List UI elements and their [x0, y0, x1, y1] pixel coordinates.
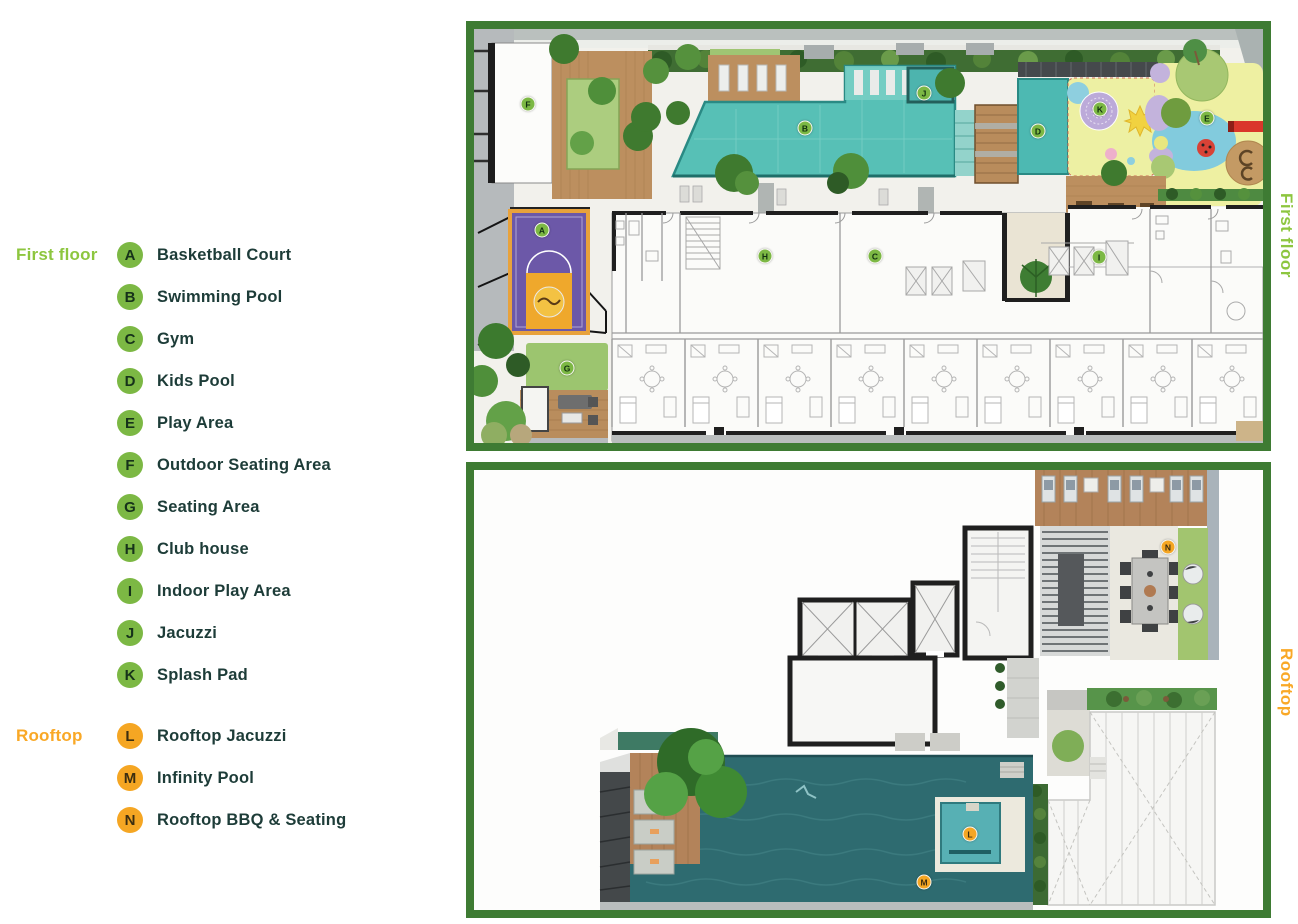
legend-label-b: Swimming Pool	[157, 288, 282, 307]
legend-row-m: MInfinity Pool	[0, 757, 460, 799]
first-floor-side-label: First floor	[1276, 193, 1296, 278]
legend-marker-i: I	[117, 578, 143, 604]
infinity-edge-walkway	[600, 902, 1033, 910]
legend-label-a: Basketball Court	[157, 246, 291, 265]
legend-marker-g: G	[117, 494, 143, 520]
legend-label-j: Jacuzzi	[157, 624, 217, 643]
bbq-pergola	[1040, 526, 1110, 656]
legend-group-title: First floor	[16, 245, 98, 265]
pergola	[1018, 62, 1158, 77]
legend-label-d: Kids Pool	[157, 372, 235, 391]
legend-marker-n: N	[117, 807, 143, 833]
seating-area	[520, 343, 608, 443]
legend-label-l: Rooftop Jacuzzi	[157, 727, 287, 746]
legend-label-f: Outdoor Seating Area	[157, 456, 331, 475]
legend-group-title: Rooftop	[16, 726, 83, 746]
rooftop-plan-panel: NLM	[466, 462, 1271, 918]
legend-marker-d: D	[117, 368, 143, 394]
legend-marker-b: B	[117, 284, 143, 310]
legend-row-g: GSeating Area	[0, 486, 460, 528]
rooftop-jacuzzi	[935, 797, 1025, 872]
legend-label-h: Club house	[157, 540, 249, 559]
first-floor-plan-image	[466, 21, 1271, 451]
legend-row-f: FOutdoor Seating Area	[0, 444, 460, 486]
legend-label-m: Infinity Pool	[157, 769, 254, 788]
building-floorplan	[612, 205, 1263, 443]
legend-row-d: DKids Pool	[0, 360, 460, 402]
kids-pool	[1018, 79, 1068, 174]
legend-marker-k: K	[117, 662, 143, 688]
legend-row-a: First floorABasketball Court	[0, 234, 460, 276]
rooftop-plan-image	[466, 462, 1271, 918]
legend-row-b: BSwimming Pool	[0, 276, 460, 318]
legend-label-k: Splash Pad	[157, 666, 248, 685]
legend-row-j: JJacuzzi	[0, 612, 460, 654]
legend-marker-l: L	[117, 723, 143, 749]
legend-label-c: Gym	[157, 330, 194, 349]
rooftop-dining	[1110, 526, 1180, 660]
legend-marker-j: J	[117, 620, 143, 646]
legend-label-i: Indoor Play Area	[157, 582, 291, 601]
amenities-legend: First floorABasketball CourtBSwimming Po…	[0, 234, 460, 841]
legend-row-i: IIndoor Play Area	[0, 570, 460, 612]
legend-label-g: Seating Area	[157, 498, 260, 517]
legend-marker-h: H	[117, 536, 143, 562]
rooftop-lawn	[1178, 528, 1208, 660]
legend-label-n: Rooftop BBQ & Seating	[157, 811, 346, 830]
legend-row-n: NRooftop BBQ & Seating	[0, 799, 460, 841]
legend-marker-a: A	[117, 242, 143, 268]
pool-steps-bridge	[955, 105, 1018, 183]
legend-row-c: CGym	[0, 318, 460, 360]
legend-label-e: Play Area	[157, 414, 233, 433]
legend-row-k: KSplash Pad	[0, 654, 460, 696]
legend-marker-m: M	[117, 765, 143, 791]
legend-marker-f: F	[117, 452, 143, 478]
legend-row-h: HClub house	[0, 528, 460, 570]
legend-row-e: EPlay Area	[0, 402, 460, 444]
first-floor-plan-panel: FBJDKEAHCIG	[466, 21, 1271, 451]
amenities-brochure-page: First floorABasketball CourtBSwimming Po…	[0, 0, 1298, 924]
rooftop-side-label: Rooftop	[1276, 648, 1296, 717]
legend-marker-c: C	[117, 326, 143, 352]
legend-marker-e: E	[117, 410, 143, 436]
legend-row-l: RooftopLRooftop Jacuzzi	[0, 715, 460, 757]
